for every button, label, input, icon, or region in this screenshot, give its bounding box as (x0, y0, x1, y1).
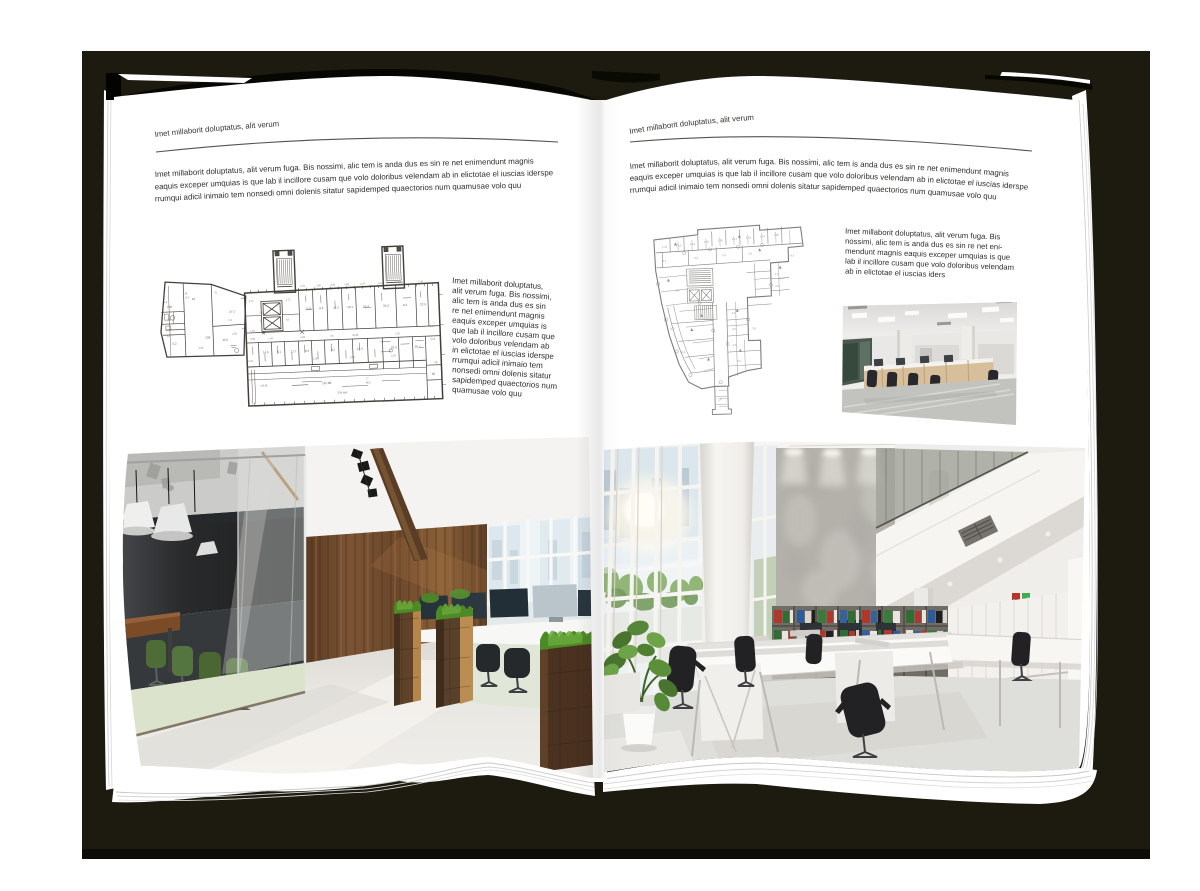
svg-text:2.36: 2.36 (313, 357, 318, 360)
svg-text:8.3: 8.3 (305, 349, 310, 353)
svg-text:12.8: 12.8 (305, 307, 311, 311)
svg-text:12.6: 12.6 (185, 296, 190, 299)
svg-text:4.03: 4.03 (300, 336, 305, 339)
svg-text:30.7: 30.7 (415, 344, 421, 348)
svg-text:11.2: 11.2 (333, 305, 339, 309)
svg-text:4.83: 4.83 (232, 332, 237, 335)
svg-text:1.45: 1.45 (418, 280, 423, 283)
svg-text:5.56: 5.56 (350, 356, 355, 359)
svg-text:1.26: 1.26 (268, 337, 273, 340)
svg-text:2.72: 2.72 (286, 298, 291, 301)
svg-text:1.62: 1.62 (395, 332, 400, 335)
svg-text:2.80: 2.80 (316, 284, 321, 287)
svg-text:3.72: 3.72 (249, 300, 254, 303)
svg-text:1.20: 1.20 (774, 233, 780, 237)
svg-text:8.4: 8.4 (403, 303, 408, 307)
svg-text:4.10: 4.10 (378, 282, 383, 285)
svg-text:5.2: 5.2 (172, 342, 177, 346)
svg-text:3.98: 3.98 (250, 338, 255, 341)
svg-text:20.4: 20.4 (363, 304, 369, 308)
svg-text:208: 208 (205, 335, 210, 339)
svg-text:37.1: 37.1 (229, 309, 235, 313)
svg-text:146.88: 146.88 (260, 384, 268, 387)
svg-text:206: 206 (167, 305, 172, 309)
svg-text:2.75: 2.75 (300, 285, 305, 288)
svg-text:14.6: 14.6 (263, 350, 269, 354)
svg-text:1.19: 1.19 (760, 234, 766, 238)
svg-text:2-й зал: 2-й зал (337, 390, 347, 394)
svg-text:5.63: 5.63 (430, 338, 435, 341)
svg-text:1B: 1B (434, 361, 437, 364)
svg-text:142.88: 142.88 (322, 381, 332, 385)
svg-text:16.1: 16.1 (347, 305, 353, 309)
svg-text:2.12: 2.12 (259, 311, 264, 314)
svg-text:5.43: 5.43 (248, 360, 253, 363)
svg-text:1.11: 1.11 (228, 319, 233, 322)
svg-text:1.18: 1.18 (746, 235, 752, 239)
svg-text:2.92: 2.92 (330, 284, 335, 287)
svg-text:3.75: 3.75 (360, 282, 365, 285)
svg-text:18.3: 18.3 (391, 345, 397, 349)
svg-text:1.36: 1.36 (250, 330, 255, 333)
svg-text:40.2: 40.2 (222, 338, 228, 342)
svg-text:1.14: 1.14 (690, 242, 696, 246)
svg-text:2.26: 2.26 (391, 354, 396, 357)
svg-text:1.17: 1.17 (732, 237, 738, 241)
svg-text:25.58: 25.58 (352, 334, 359, 337)
svg-text:4.55: 4.55 (199, 347, 204, 350)
svg-text:10: 10 (167, 318, 171, 322)
svg-text:11.7: 11.7 (291, 349, 297, 353)
svg-text:86.5: 86.5 (366, 381, 371, 384)
svg-text:3.00: 3.00 (344, 283, 349, 286)
svg-text:1.16: 1.16 (718, 238, 724, 242)
svg-text:6.2: 6.2 (331, 348, 336, 352)
svg-text:102: 102 (681, 350, 686, 354)
svg-text:1.12: 1.12 (662, 245, 668, 249)
svg-text:103: 103 (670, 326, 675, 330)
svg-text:2.88: 2.88 (398, 281, 403, 284)
svg-text:9.1: 9.1 (277, 350, 282, 354)
svg-text:36: 36 (432, 372, 436, 376)
svg-text:2.54: 2.54 (430, 325, 435, 328)
svg-text:1.15: 1.15 (704, 240, 710, 244)
svg-text:30.2: 30.2 (383, 304, 389, 308)
svg-text:22.3: 22.3 (420, 302, 426, 306)
svg-text:21.8: 21.8 (260, 319, 265, 322)
svg-text:26: 26 (192, 297, 196, 301)
svg-text:9.6: 9.6 (319, 306, 324, 310)
